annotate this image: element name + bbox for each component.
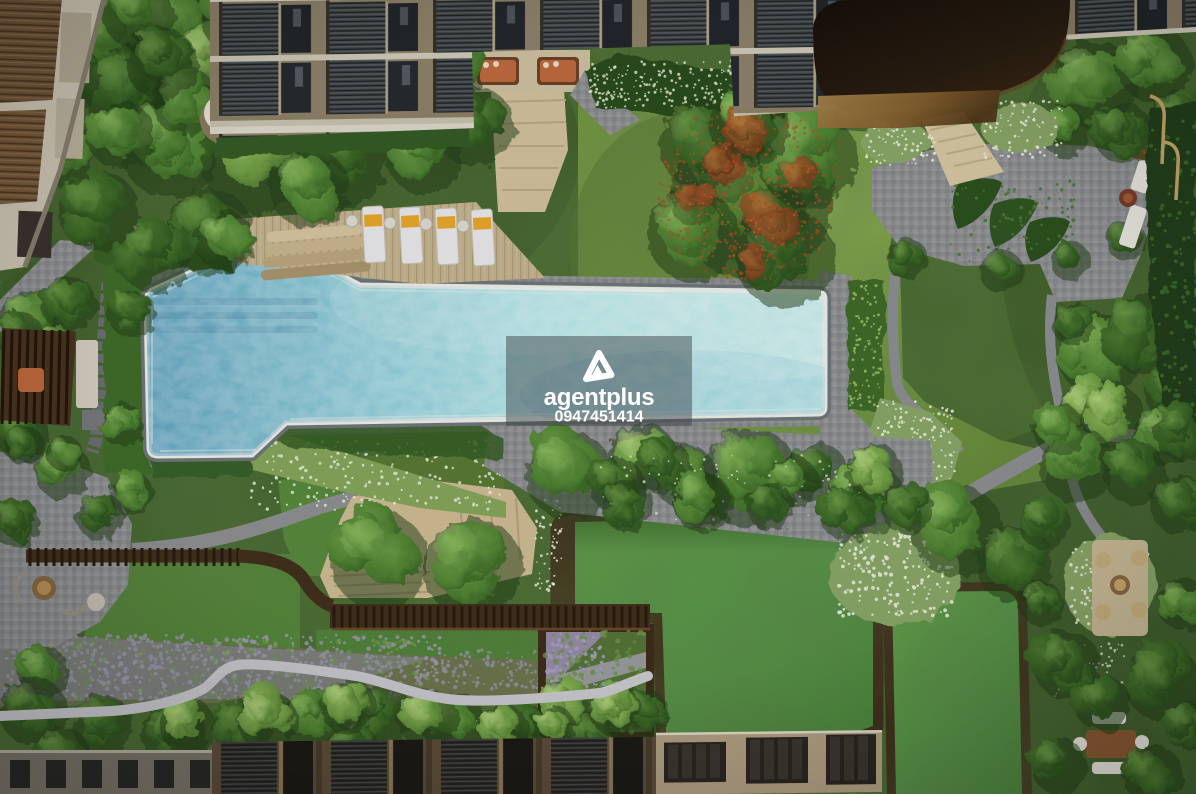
svg-text:0947451414: 0947451414 [555,409,644,426]
svg-text:agentplus: agentplus [544,384,655,411]
